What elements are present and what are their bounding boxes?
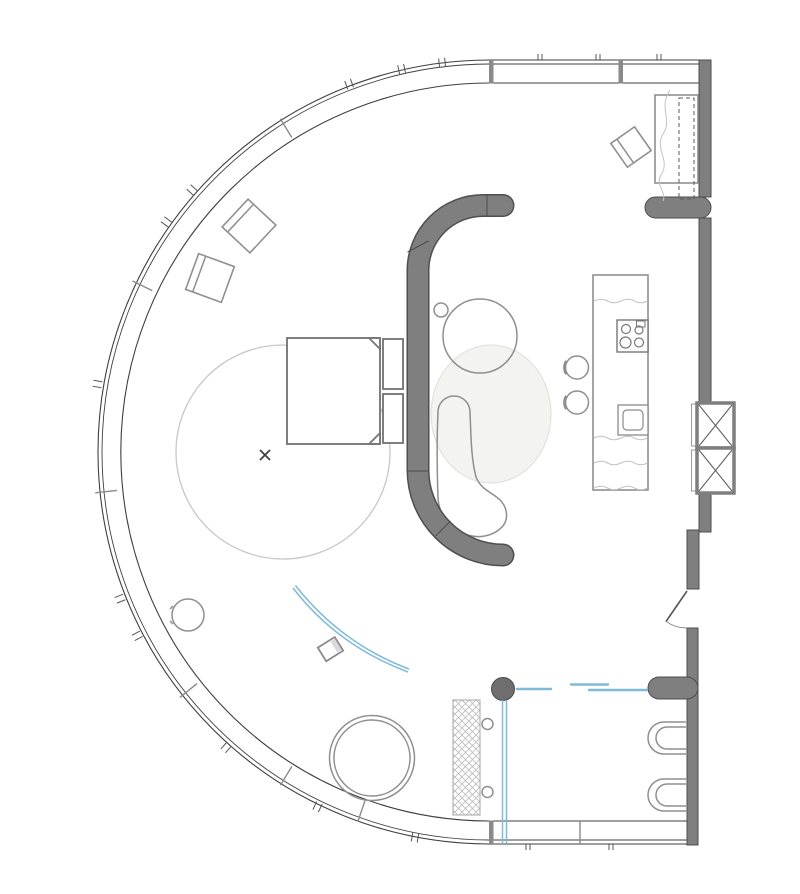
wall-stub-rounded: [645, 197, 711, 218]
small-side-table: [434, 303, 448, 317]
radiator-hatched: [453, 700, 480, 815]
entry-door: [666, 591, 687, 628]
pillow: [383, 339, 403, 389]
lounge-chair: [186, 254, 235, 303]
wall-hung-toilet: [648, 779, 686, 811]
floor-plant: [170, 599, 204, 631]
bar-stool: [565, 391, 589, 414]
media-box: [318, 637, 343, 661]
shower-column: [492, 678, 515, 701]
window-mullion: [619, 60, 624, 84]
ventilation-shaft-upper: [692, 403, 735, 448]
dining-table: [330, 716, 415, 801]
band-tick-marks: [526, 844, 613, 850]
glass-partitions: [503, 685, 648, 844]
floor-plan-drawing: [0, 0, 800, 894]
tilted-armchair: [611, 127, 651, 167]
kitchen-island: [593, 275, 648, 490]
main-bed: [287, 338, 403, 444]
lounge-chair: [222, 199, 276, 253]
ventilation-shaft-lower: [692, 448, 735, 493]
sink: [618, 405, 648, 435]
pillow: [383, 394, 403, 443]
wall-hung-toilet: [648, 722, 686, 754]
center-marker-x: [260, 450, 270, 460]
bar-stool: [565, 356, 589, 379]
top-window-band: [489, 54, 711, 84]
bottom-window-band: [489, 821, 698, 851]
bathroom-wall-stub: [648, 677, 698, 699]
facade-glazing-arc: [92, 58, 491, 844]
organic-lounge-rug: [431, 345, 551, 483]
four-burner-hob: [617, 320, 648, 352]
door-swing-arc: [666, 622, 687, 629]
band-tick-marks: [538, 54, 661, 60]
guest-bed: [655, 90, 698, 201]
door-knob: [482, 787, 493, 798]
door-leaf: [666, 591, 687, 622]
window-mullion: [489, 821, 494, 845]
door-knob: [482, 719, 493, 730]
curtain-track: [293, 586, 409, 673]
floor-plan-page: [0, 0, 800, 894]
window-mullion: [489, 60, 494, 84]
